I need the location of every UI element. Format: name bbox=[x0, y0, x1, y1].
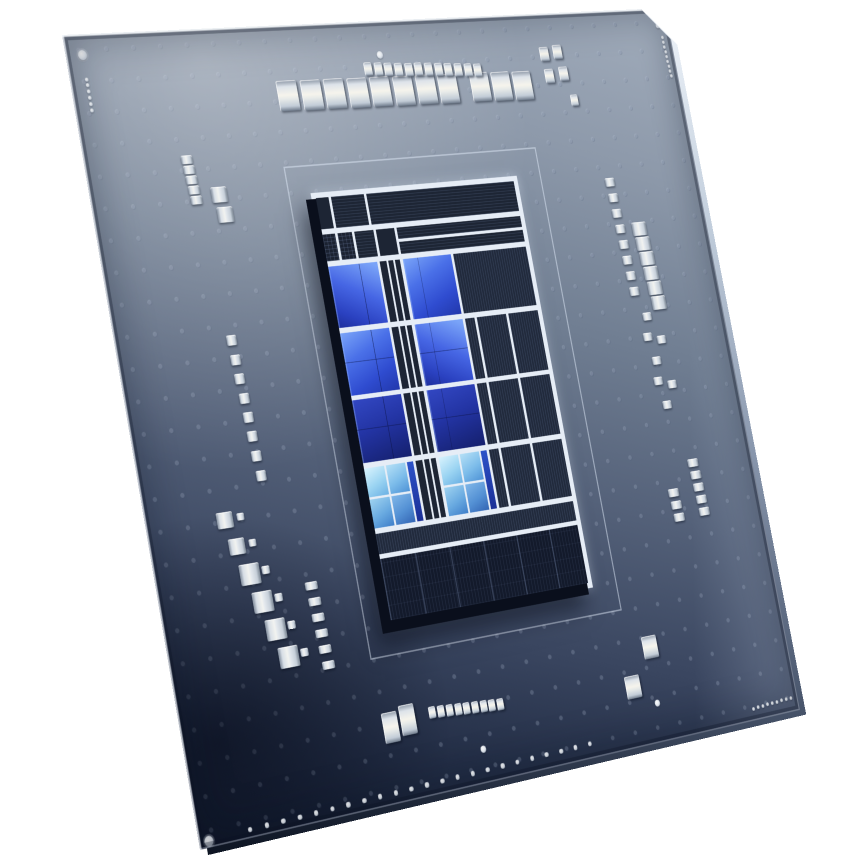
die-block-uncore bbox=[331, 194, 369, 228]
capacitor bbox=[687, 458, 699, 468]
capacitor bbox=[622, 255, 633, 265]
capacitor bbox=[299, 79, 324, 110]
via-dot bbox=[264, 822, 269, 828]
via-dot bbox=[84, 77, 88, 81]
via-dot bbox=[663, 45, 666, 49]
via-dot bbox=[784, 697, 787, 701]
via-dot bbox=[330, 806, 335, 812]
via-dot bbox=[661, 35, 664, 39]
capacitor bbox=[228, 537, 247, 556]
via-dot bbox=[573, 745, 578, 751]
via-dot bbox=[756, 705, 759, 709]
via-dot bbox=[247, 826, 252, 832]
capacitor bbox=[308, 597, 322, 607]
capacitor bbox=[433, 63, 443, 77]
via-dot bbox=[297, 814, 302, 820]
capacitor bbox=[255, 469, 267, 481]
capacitor bbox=[643, 332, 653, 341]
capacitor bbox=[641, 634, 660, 659]
capacitor bbox=[180, 155, 193, 164]
via-dot bbox=[770, 701, 773, 705]
via-dot bbox=[766, 702, 769, 706]
capacitor bbox=[618, 240, 629, 250]
capacitor bbox=[233, 373, 245, 385]
capacitor bbox=[246, 430, 258, 442]
die-block-uncore bbox=[337, 232, 356, 260]
capacitor bbox=[642, 312, 652, 321]
capacitor bbox=[182, 165, 195, 174]
via-dot bbox=[662, 40, 665, 44]
capacitor bbox=[695, 494, 707, 504]
capacitor bbox=[611, 209, 622, 218]
fiducial-dot bbox=[376, 51, 383, 59]
capacitor bbox=[698, 506, 710, 516]
ecore-tile bbox=[391, 493, 416, 525]
capacitor bbox=[238, 562, 262, 586]
via-dot bbox=[665, 55, 668, 59]
capacitor bbox=[624, 674, 643, 700]
capacitor bbox=[398, 703, 418, 736]
ecore-tile bbox=[386, 462, 411, 494]
capacitor bbox=[210, 186, 228, 203]
via-dot bbox=[281, 818, 286, 824]
capacitor bbox=[185, 175, 198, 184]
capacitor bbox=[436, 704, 445, 717]
capacitor bbox=[604, 178, 615, 187]
via-dot bbox=[761, 704, 764, 708]
capacitor bbox=[558, 66, 569, 81]
capacitor bbox=[274, 593, 283, 602]
capacitor bbox=[393, 63, 403, 77]
via-dot bbox=[393, 790, 398, 796]
capacitor bbox=[453, 63, 463, 76]
ecore-tile bbox=[364, 465, 389, 497]
capacitor bbox=[381, 711, 402, 744]
capacitor bbox=[436, 74, 460, 104]
capacitor bbox=[413, 62, 423, 76]
ecore-tile bbox=[465, 481, 489, 512]
capacitor bbox=[472, 63, 482, 76]
ecore-tile bbox=[369, 497, 394, 529]
via-dot bbox=[500, 763, 505, 769]
capacitor bbox=[251, 590, 275, 615]
capacitor bbox=[544, 69, 556, 84]
capacitor bbox=[490, 71, 514, 101]
fiducial-dot bbox=[77, 49, 88, 60]
fiducial-dot bbox=[480, 745, 487, 753]
capacitor bbox=[643, 265, 660, 280]
capacitor bbox=[462, 701, 471, 714]
via-dot bbox=[664, 50, 667, 54]
via-dot bbox=[85, 83, 89, 87]
via-dot bbox=[89, 108, 93, 112]
capacitor bbox=[373, 62, 383, 76]
capacitor bbox=[414, 74, 438, 104]
capacitor bbox=[215, 511, 234, 530]
capacitor bbox=[673, 512, 685, 522]
via-dot bbox=[87, 96, 91, 100]
capacitor bbox=[629, 287, 640, 297]
capacitor bbox=[608, 193, 619, 202]
capacitor bbox=[445, 703, 454, 716]
capacitor bbox=[238, 392, 250, 404]
capacitor bbox=[635, 236, 652, 251]
via-dot bbox=[470, 770, 475, 776]
capacitor bbox=[631, 221, 648, 236]
via-dot bbox=[669, 74, 672, 78]
ecore-tile bbox=[444, 485, 468, 517]
capacitor bbox=[690, 470, 702, 480]
capacitor bbox=[670, 500, 682, 510]
via-dot bbox=[88, 102, 92, 106]
die-block-ecore-cluster bbox=[364, 461, 424, 529]
capacitor bbox=[287, 620, 296, 629]
capacitor bbox=[667, 488, 679, 498]
capacitor bbox=[667, 379, 677, 388]
capacitor bbox=[570, 94, 579, 106]
capacitor bbox=[275, 80, 301, 112]
capacitor bbox=[656, 335, 666, 344]
fiducial-dot bbox=[654, 699, 660, 707]
die-block-uncore bbox=[322, 233, 339, 261]
via-dot bbox=[515, 759, 520, 765]
via-dot bbox=[440, 778, 445, 784]
via-dot bbox=[314, 810, 319, 816]
via-dot bbox=[409, 786, 414, 792]
capacitor bbox=[277, 645, 300, 670]
ecore-tile bbox=[460, 451, 484, 482]
capacitor bbox=[322, 78, 347, 109]
via-dot bbox=[666, 59, 669, 63]
capacitor bbox=[190, 195, 203, 205]
capacitor bbox=[487, 698, 496, 711]
capacitor bbox=[369, 76, 394, 107]
capacitor bbox=[652, 356, 662, 365]
capacitor bbox=[511, 71, 534, 101]
capacitor bbox=[470, 700, 479, 713]
via-dot bbox=[346, 802, 351, 808]
capacitor bbox=[423, 63, 433, 77]
capacitor bbox=[496, 697, 505, 710]
via-dot bbox=[668, 69, 671, 73]
via-dot bbox=[588, 741, 593, 747]
die-block-uncore bbox=[453, 246, 537, 314]
capacitor bbox=[318, 644, 332, 654]
capacitor bbox=[392, 75, 416, 106]
capacitor bbox=[346, 77, 371, 108]
capacitor bbox=[552, 45, 564, 60]
die-block-pcore bbox=[415, 319, 473, 386]
via-dot bbox=[425, 782, 430, 788]
die-block-uncore bbox=[354, 230, 378, 259]
via-dot bbox=[86, 89, 90, 93]
capacitor bbox=[615, 224, 626, 233]
die-block-pcore bbox=[427, 384, 485, 452]
capacitor bbox=[625, 271, 636, 281]
via-dot bbox=[789, 696, 792, 700]
via-dot bbox=[775, 700, 778, 704]
via-dot bbox=[362, 798, 367, 804]
die-block-pcore bbox=[340, 328, 400, 396]
via-dot bbox=[485, 767, 490, 773]
substrate-face bbox=[62, 8, 800, 850]
capacitor bbox=[264, 617, 287, 642]
capacitor bbox=[639, 250, 656, 265]
capacitor bbox=[404, 63, 414, 77]
capacitor bbox=[216, 206, 234, 223]
capacitor bbox=[653, 376, 663, 385]
capacitor bbox=[454, 702, 463, 715]
capacitor bbox=[647, 280, 664, 295]
ecore-tile bbox=[439, 454, 463, 485]
capacitor bbox=[304, 581, 318, 591]
capacitor bbox=[692, 482, 704, 492]
capacitor bbox=[321, 660, 335, 670]
capacitor bbox=[187, 185, 200, 195]
capacitor bbox=[315, 628, 329, 638]
via-dot bbox=[667, 64, 670, 68]
capacitor bbox=[311, 612, 325, 622]
capacitor bbox=[236, 512, 245, 520]
via-dot bbox=[544, 752, 549, 758]
capacitor bbox=[463, 63, 473, 76]
via-dot bbox=[780, 698, 783, 702]
capacitor bbox=[363, 62, 373, 76]
capacitor bbox=[300, 647, 309, 657]
die-block-uncore bbox=[376, 228, 399, 256]
capacitor bbox=[662, 400, 672, 409]
via-dot bbox=[530, 755, 535, 761]
capacitor bbox=[538, 47, 550, 62]
capacitor bbox=[242, 411, 254, 423]
capacitor bbox=[248, 538, 257, 546]
via-dot bbox=[455, 774, 460, 780]
capacitor bbox=[383, 63, 393, 77]
capacitor bbox=[261, 565, 270, 574]
die-block-pcore bbox=[328, 261, 388, 328]
die-block-ecore-cluster bbox=[439, 450, 497, 516]
cpu-package bbox=[62, 8, 800, 850]
capacitor bbox=[427, 705, 436, 718]
fiducial-dot bbox=[203, 834, 214, 847]
capacitor bbox=[479, 699, 488, 712]
capacitor bbox=[443, 63, 453, 77]
via-dot bbox=[559, 748, 564, 754]
die-block-pcore bbox=[403, 254, 461, 320]
capacitor bbox=[651, 295, 668, 310]
via-dot bbox=[378, 794, 383, 800]
capacitor bbox=[225, 334, 237, 345]
die-block-pcore bbox=[352, 394, 412, 463]
via-dot bbox=[752, 707, 755, 711]
cpu-product-photo bbox=[0, 0, 864, 864]
capacitor bbox=[250, 450, 262, 462]
capacitor bbox=[229, 354, 241, 365]
